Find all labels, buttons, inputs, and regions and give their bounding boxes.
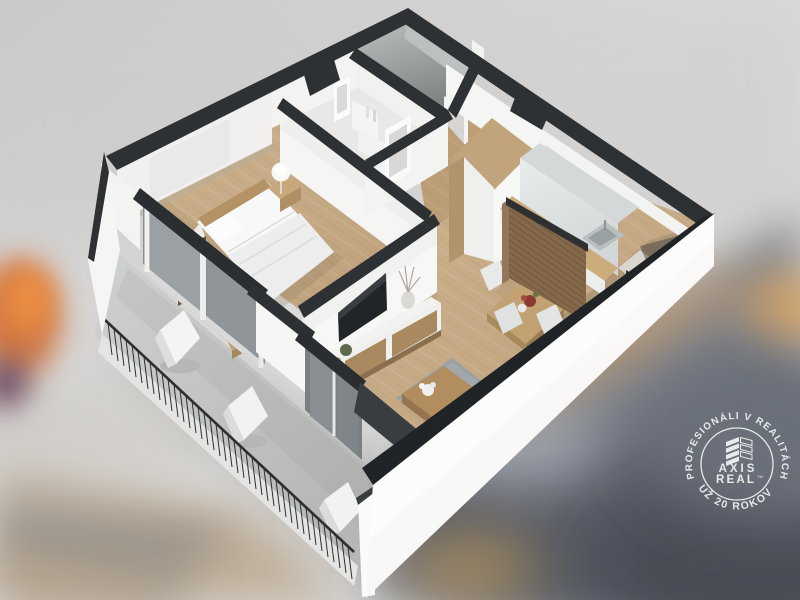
svg-text:REAL: REAL xyxy=(716,474,756,486)
svg-text:TM: TM xyxy=(757,474,763,479)
